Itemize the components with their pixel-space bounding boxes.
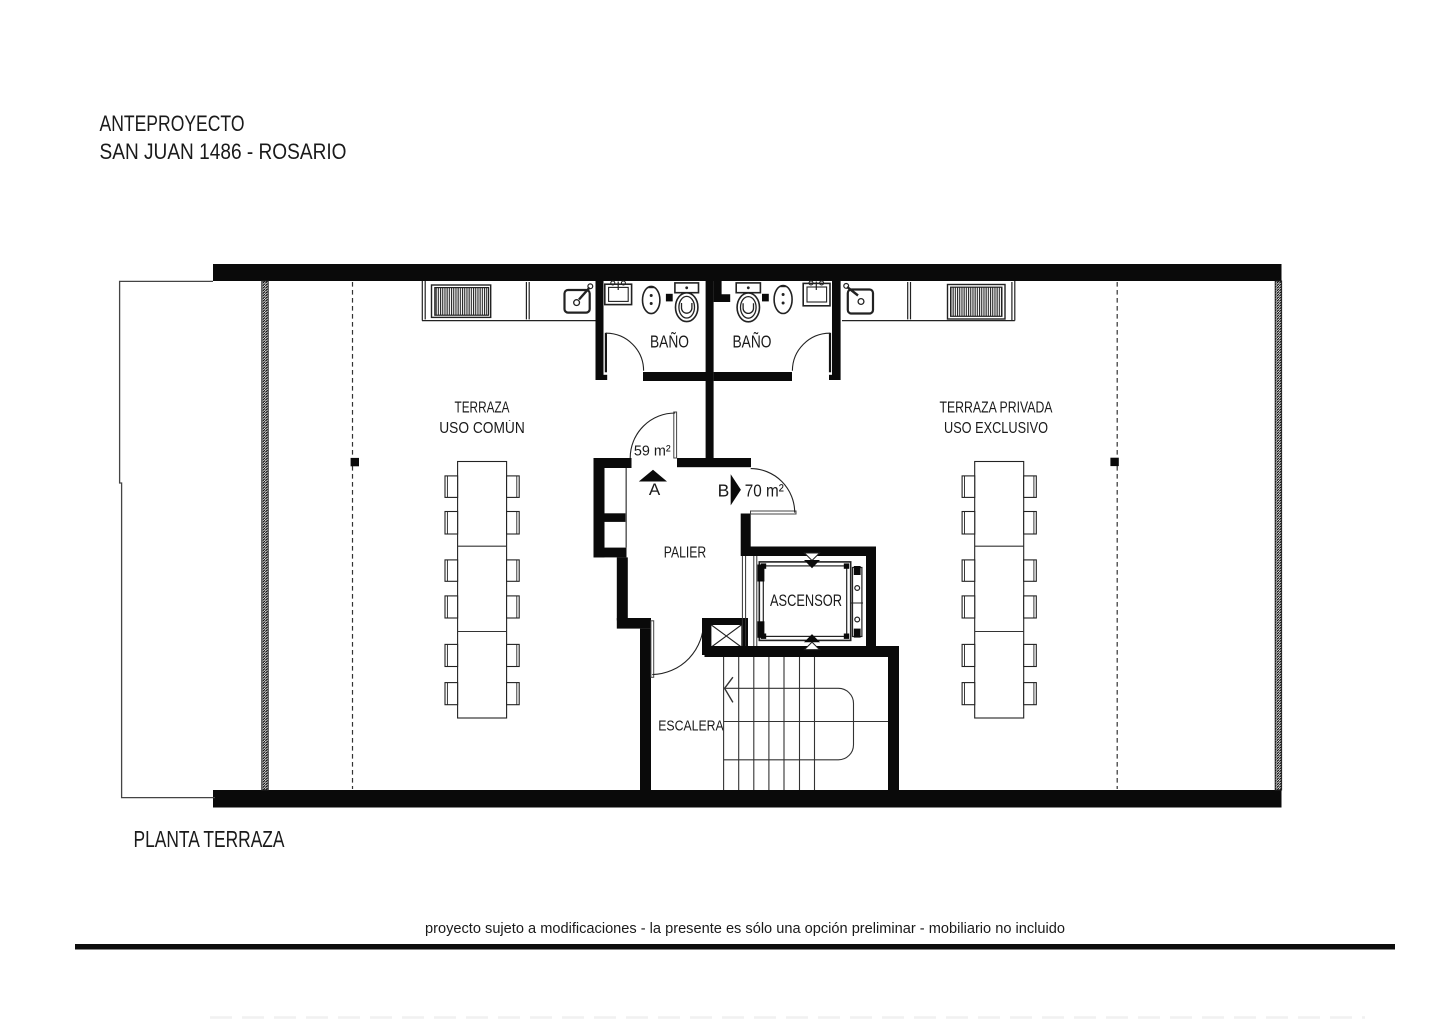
svg-text:USO EXCLUSIVO: USO EXCLUSIVO: [944, 420, 1048, 437]
svg-text:TERRAZA PRIVADA: TERRAZA PRIVADA: [940, 400, 1054, 417]
svg-text:ESCALERA: ESCALERA: [658, 718, 724, 735]
svg-text:BAÑO: BAÑO: [733, 331, 772, 352]
svg-text:ANTEPROYECTO: ANTEPROYECTO: [100, 111, 245, 136]
svg-text:SAN JUAN 1486 - ROSARIO: SAN JUAN 1486 - ROSARIO: [100, 139, 347, 164]
svg-text:proyecto sujeto a modificacion: proyecto sujeto a modificaciones - la pr…: [425, 921, 1065, 937]
svg-text:B: B: [718, 481, 730, 501]
svg-text:USO COMÚN: USO COMÚN: [439, 420, 525, 437]
svg-text:59 m²: 59 m²: [634, 443, 671, 460]
svg-text:PALIER: PALIER: [664, 545, 707, 562]
svg-text:TERRAZA: TERRAZA: [455, 400, 510, 417]
svg-text:ASCENSOR: ASCENSOR: [770, 591, 842, 610]
svg-text:A: A: [649, 480, 661, 499]
svg-text:BAÑO: BAÑO: [650, 331, 689, 352]
svg-text:PLANTA TERRAZA: PLANTA TERRAZA: [134, 826, 285, 852]
svg-text:70 m²: 70 m²: [745, 481, 784, 501]
